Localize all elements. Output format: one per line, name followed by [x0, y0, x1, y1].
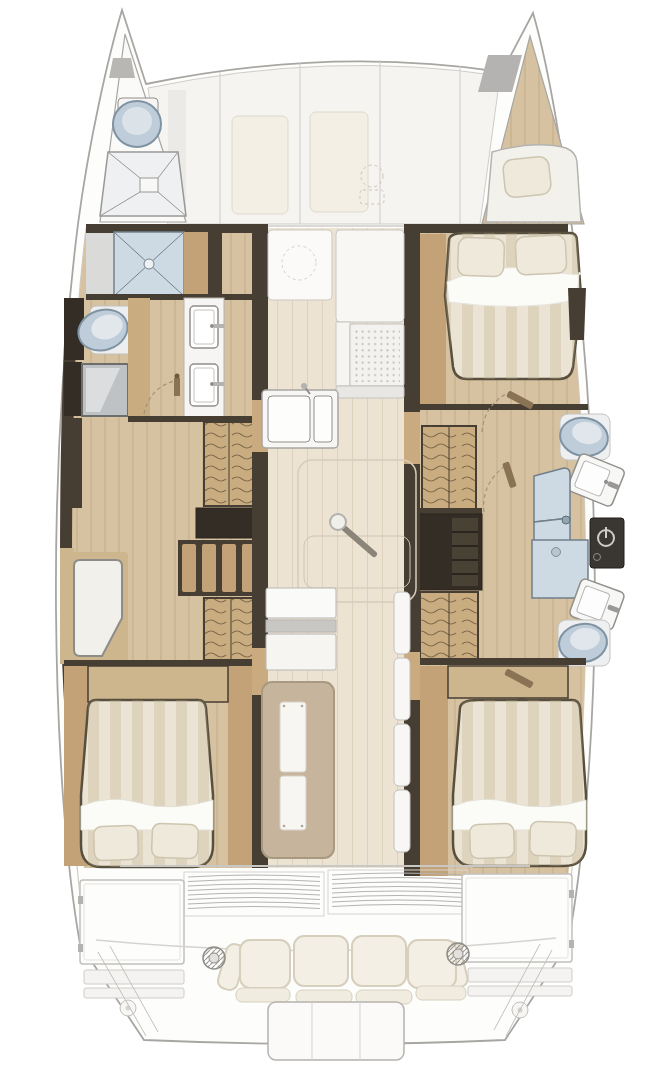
double-bed	[453, 700, 586, 866]
hull-niche	[568, 288, 586, 340]
shower-side-wall	[208, 232, 222, 296]
pillow	[457, 237, 504, 277]
saloon-table	[262, 682, 334, 858]
saloon	[262, 228, 416, 868]
cabin-plank-right	[228, 666, 252, 866]
stbd-wall-mid1	[420, 404, 588, 410]
foredeck-hatch-right	[310, 112, 368, 212]
dressing-seat	[66, 552, 128, 664]
pillow	[469, 823, 514, 859]
galley-counter	[336, 386, 404, 398]
double-bed	[81, 700, 213, 867]
port-hull	[60, 224, 268, 868]
port-wall-strip-left	[64, 418, 82, 508]
forward-settee	[268, 230, 332, 300]
cabin-plank-left	[420, 234, 446, 404]
shower-room-floor	[86, 233, 114, 296]
toilet-icon	[557, 414, 611, 460]
nav-seat-cabinet	[336, 230, 404, 322]
shower-stall-box	[82, 364, 128, 416]
port-bow-tip-locker	[109, 58, 135, 78]
stove-icon	[350, 324, 404, 386]
head-wall-strip	[64, 362, 82, 416]
pillow	[93, 825, 138, 861]
starboard-aft-cabin	[420, 666, 586, 876]
catamaran-floorplan	[0, 0, 649, 1080]
storage-locker-right	[462, 874, 574, 962]
storage-locker-left	[78, 880, 184, 964]
foredeck-hatch-left	[232, 116, 288, 214]
winch-icon	[447, 943, 469, 965]
companionway-steps	[420, 592, 478, 660]
electrical-panel-icon	[590, 518, 624, 568]
headboard-shelf	[88, 666, 228, 702]
pillow	[515, 235, 567, 276]
galley-fridge-cabinets	[266, 588, 336, 670]
pillow	[151, 823, 198, 859]
galley-sink-icon	[262, 383, 338, 448]
stbd-aft-bulkhead	[420, 658, 586, 665]
cabin-plank-left	[420, 666, 448, 876]
winch-icon	[203, 947, 225, 969]
pillow	[529, 821, 576, 857]
vanity-sinks	[184, 298, 224, 418]
drawer-chest	[196, 508, 254, 538]
foredeck	[148, 60, 500, 226]
shower-pan-icon	[114, 232, 184, 296]
toilet-icon	[113, 98, 161, 147]
drawer-slats	[178, 540, 256, 596]
companionway-steps	[204, 422, 254, 506]
stove-side-panel	[336, 322, 350, 386]
stbd-door-gap	[404, 412, 420, 464]
berth-pillow	[502, 156, 552, 199]
starboard-forward-cabin	[420, 233, 586, 404]
starboard-hull	[404, 224, 626, 876]
head-plank-column	[128, 298, 150, 418]
shower-side-panel	[184, 232, 208, 296]
double-bed	[445, 233, 581, 379]
stbd-wall-top	[420, 224, 568, 233]
shower-pan-icon	[100, 152, 186, 216]
cockpit-bench	[216, 936, 469, 1004]
companionway-steps	[204, 598, 258, 660]
companionway-steps	[422, 426, 476, 510]
floorplan-page	[0, 0, 649, 1080]
swim-platform	[268, 1002, 404, 1060]
port-wall-mid1	[86, 294, 252, 300]
port-aft-bulkhead	[64, 660, 252, 666]
